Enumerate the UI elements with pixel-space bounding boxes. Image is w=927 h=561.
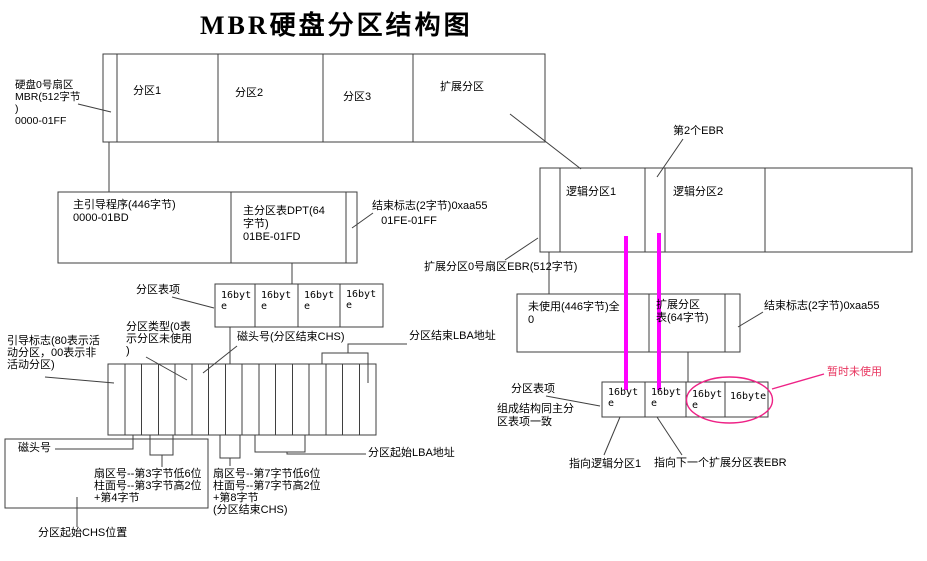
ebr-sector-label: 扩展分区0号扇区EBR(512字节)	[424, 261, 577, 273]
start-chs-bytes-label: 扇区号--第3字节低6位 柱面号--第3字节高2位 +第4字节	[94, 468, 202, 504]
point-logical1-label: 指向逻辑分区1	[569, 458, 641, 470]
page-title: MBR硬盘分区结构图	[200, 5, 473, 42]
end-lba-label: 分区结束LBA地址	[409, 330, 496, 342]
part-type-label: 分区类型(0表 示分区未使用 )	[126, 321, 192, 357]
pte-right-note: 组成结构同主分 区表项一致	[497, 403, 574, 429]
disk-bar	[103, 54, 545, 142]
pte-left-cell1-label: 16byte	[221, 290, 255, 312]
mbr-end-flag-label: 结束标志(2字节)0xaa55 01FE-01FF	[372, 199, 488, 229]
boot-flag-label-line	[45, 377, 114, 383]
mbr-sector-label: 硬盘0号扇区 MBR(512字节 ) 0000-01FF	[15, 79, 80, 127]
partition1-label: 分区1	[133, 85, 161, 97]
temp-unused-label: 暂时未使用	[827, 366, 882, 378]
partition3-label: 分区3	[343, 91, 371, 103]
temp-unused-label-line	[772, 374, 824, 389]
end-chs-bytes-label: 扇区号--第7字节低6位 柱面号--第7字节高2位 +第8字节 (分区结束CHS…	[213, 468, 321, 516]
pte-right-cell4-label: 16byte	[730, 391, 770, 402]
start-chs-label: 分区起始CHS位置	[38, 527, 127, 539]
dpt-label: 主分区表DPT(64 字节) 01BE-01FD	[243, 205, 325, 244]
ebr-sector-label-line	[505, 238, 538, 260]
ext-table-label: 扩展分区 表(64字节)	[656, 299, 709, 325]
partition2-label: 分区2	[235, 87, 263, 99]
boot-code-label: 主引导程序(446字节) 0000-01BD	[73, 199, 176, 225]
pte-left-cell2-label: 16byte	[261, 290, 295, 312]
byte-bar	[108, 364, 376, 435]
pte-right-label: 分区表项	[511, 383, 555, 395]
point-next-ebr-line	[657, 417, 682, 455]
logical1-label: 逻辑分区1	[566, 186, 616, 198]
magenta-line-logical1	[624, 236, 628, 390]
end-lba-stub	[348, 344, 407, 353]
start-lba-label: 分区起始LBA地址	[368, 447, 455, 459]
end-chs-bracket	[220, 435, 240, 458]
extended-partition-box	[413, 54, 545, 142]
pte-left-label: 分区表项	[136, 284, 180, 296]
mbr-endflag-sliver-box	[346, 192, 357, 263]
pte-right-cell1-label: 16byte	[608, 387, 642, 409]
endflag-right-label-line	[738, 312, 763, 327]
logical2-label: 逻辑分区2	[673, 186, 723, 198]
head-end-label: 磁头号(分区结束CHS)	[237, 331, 345, 343]
pte-left-cell3-label: 16byte	[304, 290, 338, 312]
point-logical1-line	[604, 417, 620, 455]
pte-right-cell2-label: 16byte	[651, 387, 685, 409]
ebr1-sliver-box	[540, 168, 560, 252]
extended-partition-label: 扩展分区	[440, 81, 484, 93]
ebr-endflag-sliver-box	[725, 294, 740, 352]
ebr-end-flag-label: 结束标志(2字节)0xaa55	[764, 300, 880, 312]
boot-flag-label: 引导标志(80表示活 动分区，00表示非 活动分区)	[7, 335, 100, 371]
point-next-ebr-label: 指向下一个扩展分区表EBR	[654, 457, 787, 469]
second-ebr-label: 第2个EBR	[673, 125, 724, 137]
mbr-sliver-box	[103, 54, 117, 142]
mbr-partition-diagram: MBR硬盘分区结构图 硬盘0号扇区 MBR(512字节 ) 0000-01FF …	[0, 0, 927, 561]
start-lba-bracket	[255, 435, 305, 452]
logical-rest-box	[765, 168, 912, 252]
partition2-box	[218, 54, 323, 142]
pte-left-label-line	[172, 297, 214, 308]
head-label: 磁头号	[18, 442, 51, 454]
logical1-box	[560, 168, 645, 252]
logical2-box	[665, 168, 765, 252]
logical-bar	[540, 168, 912, 252]
pte-right-cell3-label: 16byte	[692, 389, 726, 411]
pte-left-cell4-label: 16byte	[346, 289, 380, 311]
ebr2-sliver-box	[645, 168, 665, 252]
partition1-box	[117, 54, 218, 142]
ebr-unused-label: 未使用(446字节)全 0	[528, 301, 620, 327]
